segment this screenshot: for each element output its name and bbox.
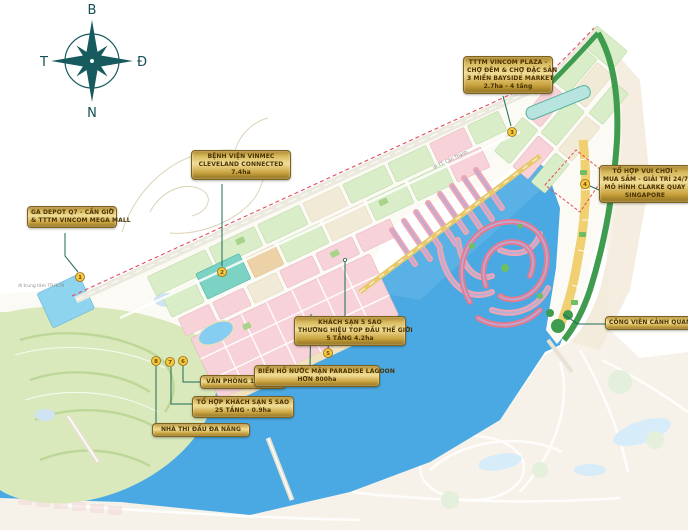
svg-text:2: 2 <box>220 270 224 276</box>
callout-paradise-lagoon: BIỂN HỒ NƯỚC MẶN PARADISE LAGOON HƠN 800… <box>254 365 380 387</box>
map-marker: 6 <box>179 357 188 366</box>
compass-east-label: Đ <box>137 55 147 70</box>
callout-benh-vien-vinmec: BỆNH VIỆN VINMEC CLEVELAND CONNECTED 7.4… <box>191 150 291 180</box>
map-marker: 1 <box>76 273 85 282</box>
svg-text:7: 7 <box>168 360 172 366</box>
map-marker: 5 <box>324 349 333 358</box>
map-marker: 8 <box>152 357 161 366</box>
svg-text:6: 6 <box>181 359 185 365</box>
callout-nha-thi-dau: NHÀ THI ĐẤU ĐA NĂNG <box>152 423 250 437</box>
map-marker: 4 <box>581 180 590 189</box>
compass-north-label: B <box>88 3 97 18</box>
compass-rose: B N T Đ <box>14 0 174 122</box>
svg-text:4: 4 <box>583 182 587 188</box>
svg-text:1: 1 <box>78 275 82 281</box>
compass-west-label: T <box>39 55 48 70</box>
callout-vincom-plaza: TTTM VINCOM PLAZA - CHỢ ĐÊM & CHỢ ĐẶC SẢ… <box>463 56 553 94</box>
map-marker: 7 <box>166 358 175 367</box>
map-marker: 3 <box>508 128 517 137</box>
callout-ga-depot: GA DEPOT Q7 - CẦN GIỜ & TTTM VINCOM MEGA… <box>27 206 117 228</box>
svg-text:5: 5 <box>326 351 330 357</box>
masterplan-map-image: 1 2 3 4 5 6 7 8 <box>0 0 688 530</box>
svg-text:8: 8 <box>154 359 158 365</box>
callout-khach-san-5-sao: KHÁCH SẠN 5 SAO THƯƠNG HIỆU TOP ĐẦU THẾ … <box>294 316 406 346</box>
svg-text:3: 3 <box>510 130 514 136</box>
road-label-hcmc: đi trung tâm TP.HCM <box>18 284 64 289</box>
callout-cong-vien-canh-quan: CÔNG VIÊN CẢNH QUAN <box>605 316 688 330</box>
map-marker: 2 <box>218 268 227 277</box>
callout-to-hop-khach-san: TỔ HỢP KHÁCH SẠN 5 SAO 25 TẦNG - 0.9ha <box>192 396 294 418</box>
compass-south-label: N <box>87 106 97 121</box>
callout-clarke-quay: TỔ HỢP VUI CHƠI - MUA SẮM - GIẢI TRÍ 24/… <box>599 165 688 203</box>
